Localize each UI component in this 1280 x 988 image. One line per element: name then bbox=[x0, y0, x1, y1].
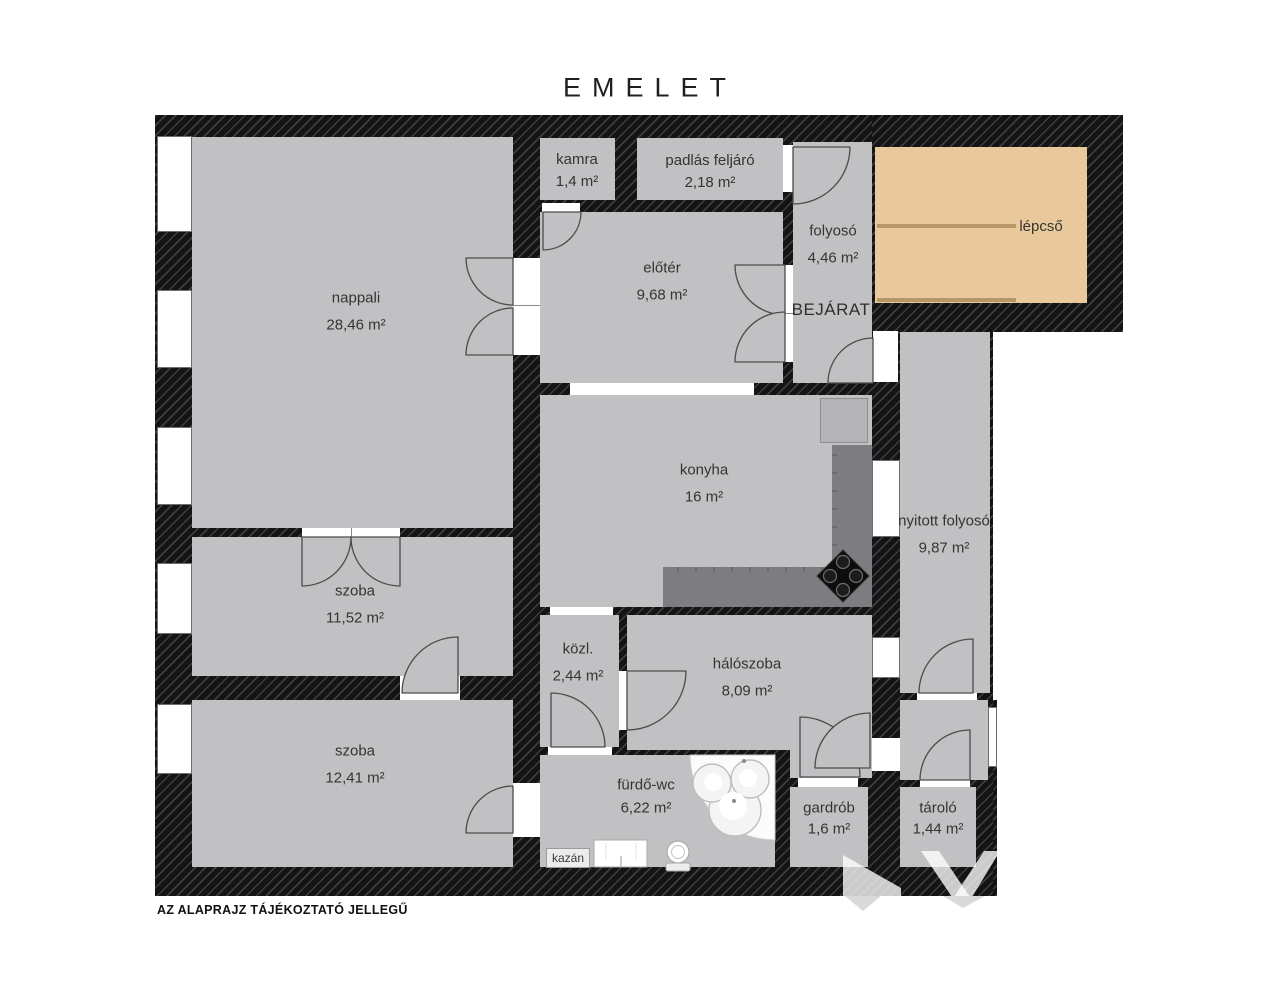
stairs-lines bbox=[877, 226, 1016, 300]
door-arc-furdo bbox=[551, 693, 605, 747]
door-arc-szoba2 bbox=[466, 786, 513, 833]
door-arc-kamra bbox=[543, 212, 581, 250]
bathtub-icon bbox=[690, 755, 775, 840]
entrance-label: BEJÁRAT bbox=[792, 300, 871, 320]
boiler-box: kazán bbox=[546, 848, 590, 868]
room-label-tarolo: tároló 1,44 m² bbox=[913, 800, 964, 839]
room-label-gardrob: gardrób 1,6 m² bbox=[803, 800, 855, 839]
door-arc-bejarat bbox=[828, 338, 873, 383]
room-label-eloter: előtér 9,68 m² bbox=[637, 260, 688, 305]
watermark bbox=[843, 851, 1000, 911]
room-label-szoba-2: szoba 12,41 m² bbox=[325, 743, 384, 788]
washbasin-icon bbox=[594, 840, 647, 867]
plan-symbols-layer bbox=[0, 0, 1280, 988]
door-arc-szoba1-left bbox=[302, 537, 351, 586]
door-arc-nyitott bbox=[919, 639, 973, 693]
room-label-padlas-feljaro: padlás feljáró 2,18 m² bbox=[665, 152, 754, 192]
room-label-nappali: nappali 28,46 m² bbox=[326, 290, 385, 335]
door-arc-nappali-lower bbox=[466, 308, 513, 355]
door-arc-padlas bbox=[793, 147, 850, 204]
door-arc-vestibule-tarolo bbox=[920, 730, 970, 780]
room-label-szoba-1: szoba 11,52 m² bbox=[326, 583, 384, 628]
room-label-kamra: kamra 1,4 m² bbox=[556, 151, 599, 191]
floorplan-page: EMELET bbox=[0, 0, 1280, 988]
door-arc-szoba1-right bbox=[351, 537, 400, 586]
toilet-icon bbox=[666, 841, 690, 871]
room-label-konyha: konyha 16 m² bbox=[680, 462, 728, 507]
door-arc-eloter-lower bbox=[735, 312, 785, 362]
stove-icon bbox=[817, 550, 869, 602]
door-arc-szoba1-szoba2 bbox=[402, 637, 458, 693]
door-arc-eloter-upper bbox=[735, 265, 785, 315]
room-label-folyoso: folyosó 4,46 m² bbox=[808, 223, 859, 268]
door-arc-nappali-upper bbox=[466, 258, 513, 305]
room-label-haloszoba: hálószoba 8,09 m² bbox=[713, 656, 781, 701]
disclaimer-note: AZ ALAPRAJZ TÁJÉKOZTATÓ JELLEGŰ bbox=[157, 903, 408, 917]
room-label-lepcso: lépcső bbox=[1019, 218, 1062, 236]
door-arcs bbox=[302, 147, 973, 833]
room-label-nyitott-folyoso: nyitott folyosó 9,87 m² bbox=[898, 513, 990, 558]
door-arc-haloszoba bbox=[627, 671, 686, 730]
room-label-furdo-wc: fürdő-wc 6,22 m² bbox=[617, 777, 675, 818]
room-label-kozl: közl. 2,44 m² bbox=[553, 641, 604, 686]
